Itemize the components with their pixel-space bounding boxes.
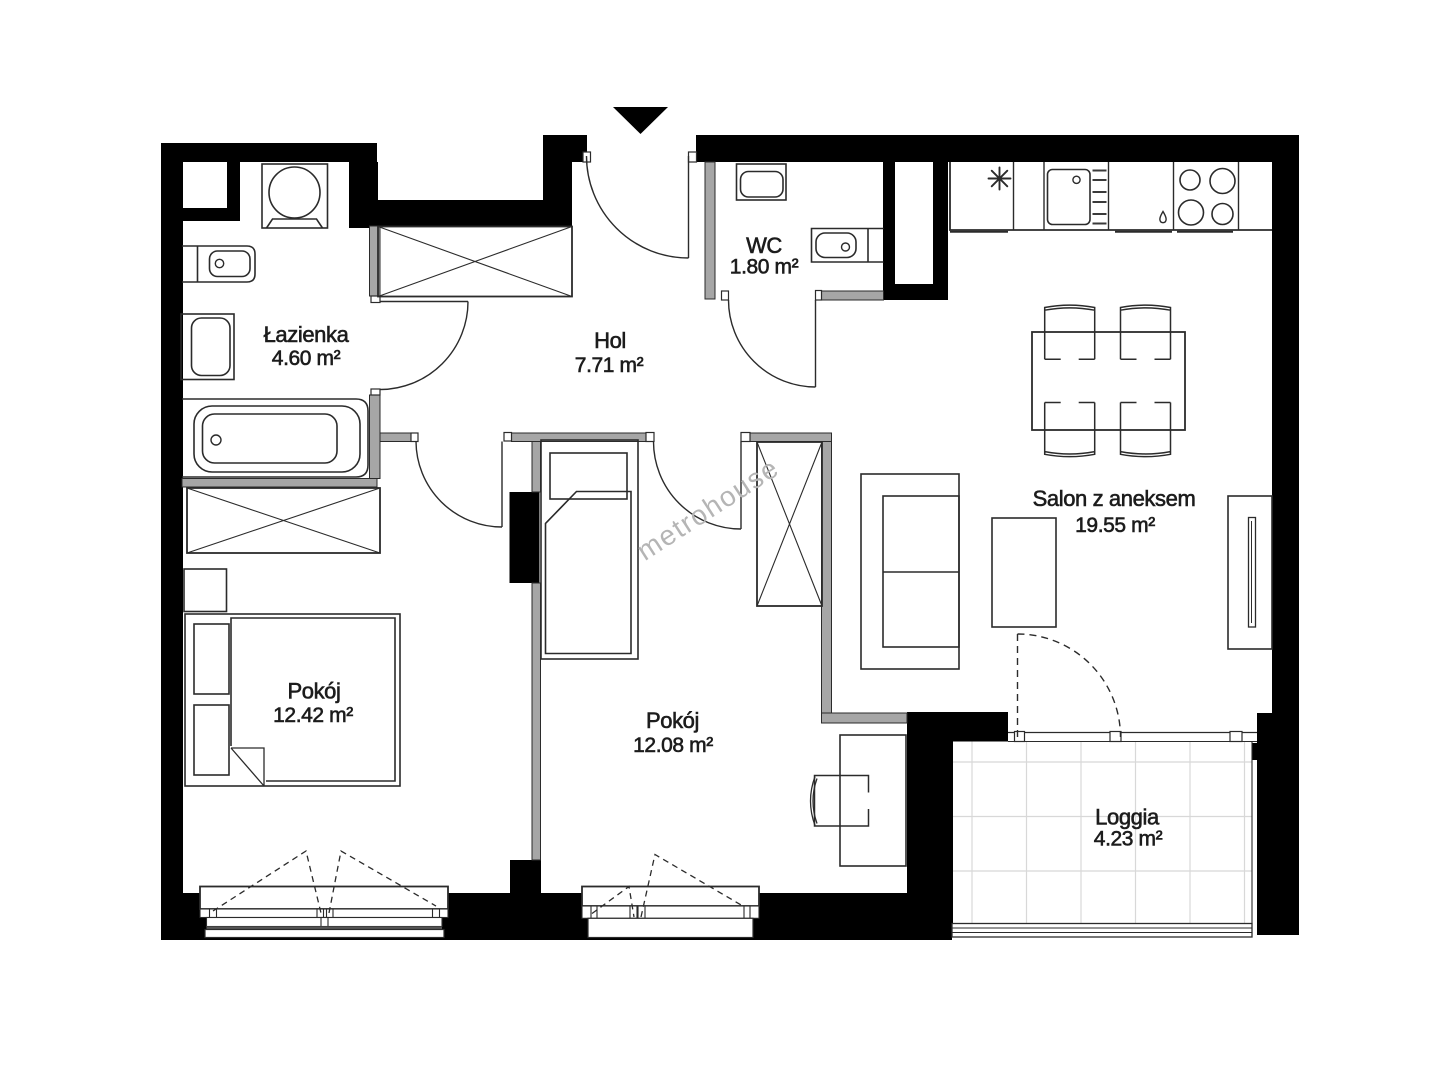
svg-text:Hol: Hol — [594, 328, 626, 353]
svg-text:Pokój: Pokój — [287, 679, 340, 704]
svg-text:7.71 m²: 7.71 m² — [575, 354, 644, 377]
svg-text:Loggia: Loggia — [1095, 805, 1160, 830]
svg-text:WC: WC — [746, 233, 782, 258]
svg-text:1.80 m²: 1.80 m² — [730, 256, 799, 279]
svg-text:Pokój: Pokój — [646, 708, 699, 733]
svg-text:4.60 m²: 4.60 m² — [272, 347, 341, 370]
svg-text:19.55 m²: 19.55 m² — [1075, 514, 1155, 537]
svg-text:Łazienka: Łazienka — [264, 322, 350, 347]
svg-text:Salon z aneksem: Salon z aneksem — [1033, 486, 1196, 511]
svg-text:4.23 m²: 4.23 m² — [1094, 828, 1163, 851]
svg-text:12.08 m²: 12.08 m² — [633, 734, 713, 757]
svg-text:12.42 m²: 12.42 m² — [273, 704, 353, 727]
